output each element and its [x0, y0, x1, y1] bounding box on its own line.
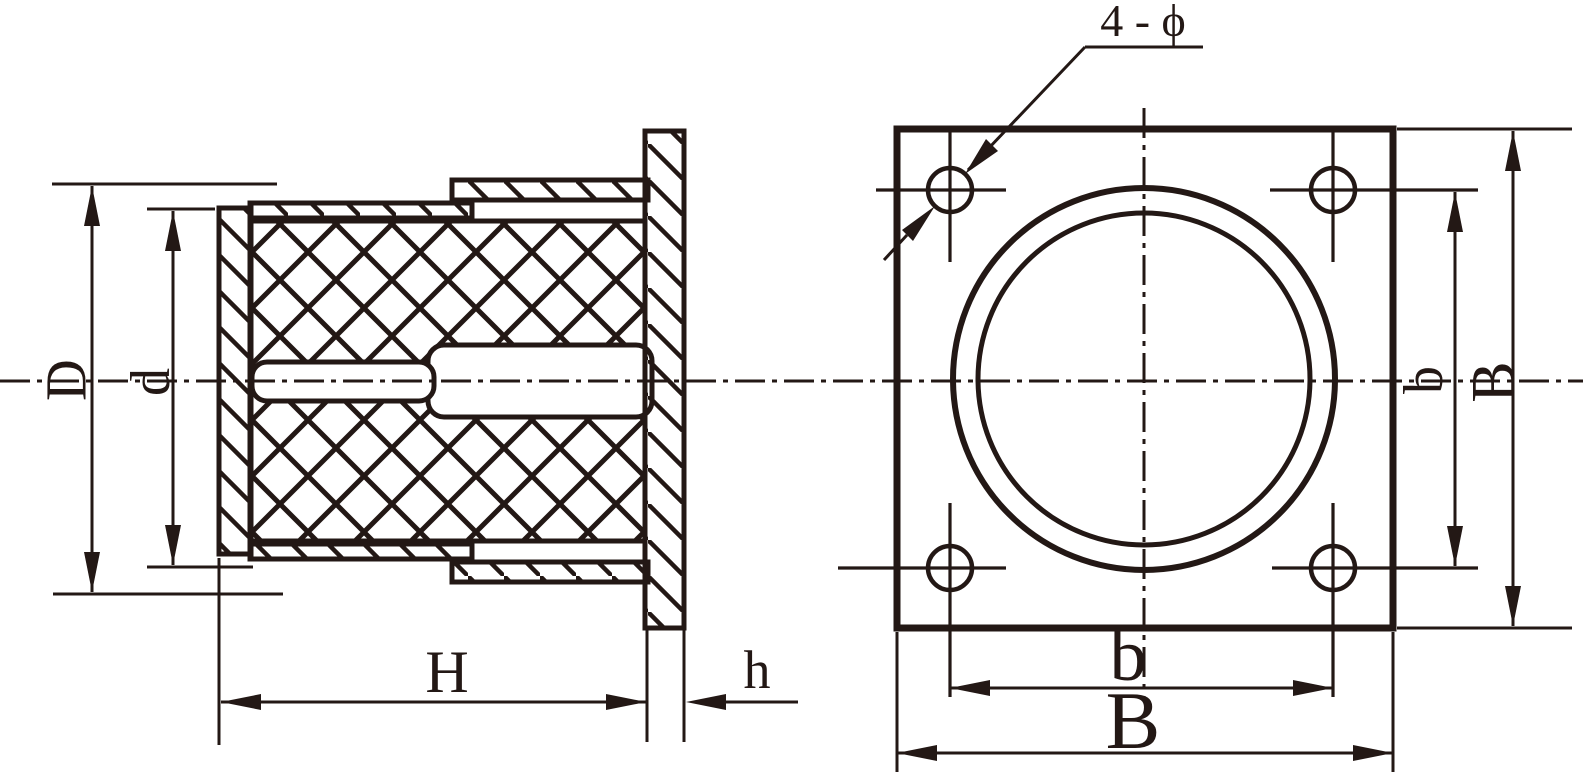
arrowhead-b-right-top: [1447, 192, 1463, 232]
label-plate-width-bottom: B: [1106, 675, 1161, 766]
label-total-height: H: [425, 639, 468, 705]
arrowhead-B-bottom-right: [1353, 745, 1393, 761]
outer-sleeve-strip-bottom: [452, 562, 648, 582]
arrowhead-B-right-bottom: [1505, 586, 1521, 626]
inner-sleeve-strip-top: [250, 203, 472, 218]
arrowhead-D-bottom: [84, 552, 100, 592]
arrowhead-B-bottom-left: [897, 745, 937, 761]
inner-sleeve-strip-bottom: [250, 544, 472, 559]
label-hole-callout: 4 - ϕ: [1100, 0, 1186, 46]
outer-sleeve-strip-top: [452, 180, 648, 200]
drawing-canvas: D d H h 4 - ϕ: [0, 0, 1583, 774]
arrowhead-h-right: [686, 694, 726, 710]
technical-drawing-svg: D d H h 4 - ϕ: [0, 0, 1583, 774]
arrowhead-b-right-bottom: [1447, 526, 1463, 566]
arrowhead-D-top: [84, 186, 100, 226]
arrowhead-B-right-top: [1505, 131, 1521, 171]
arrowhead-H-right: [606, 694, 646, 710]
arrowhead-d-bottom: [165, 525, 181, 565]
arrowhead-d-top: [165, 211, 181, 251]
label-flange-thickness: h: [744, 640, 771, 700]
front-view: [838, 129, 1478, 697]
arrowhead-b-bottom-left: [950, 680, 990, 696]
arrowhead-b-bottom-right: [1293, 680, 1333, 696]
arrowhead-H-left: [221, 694, 261, 710]
